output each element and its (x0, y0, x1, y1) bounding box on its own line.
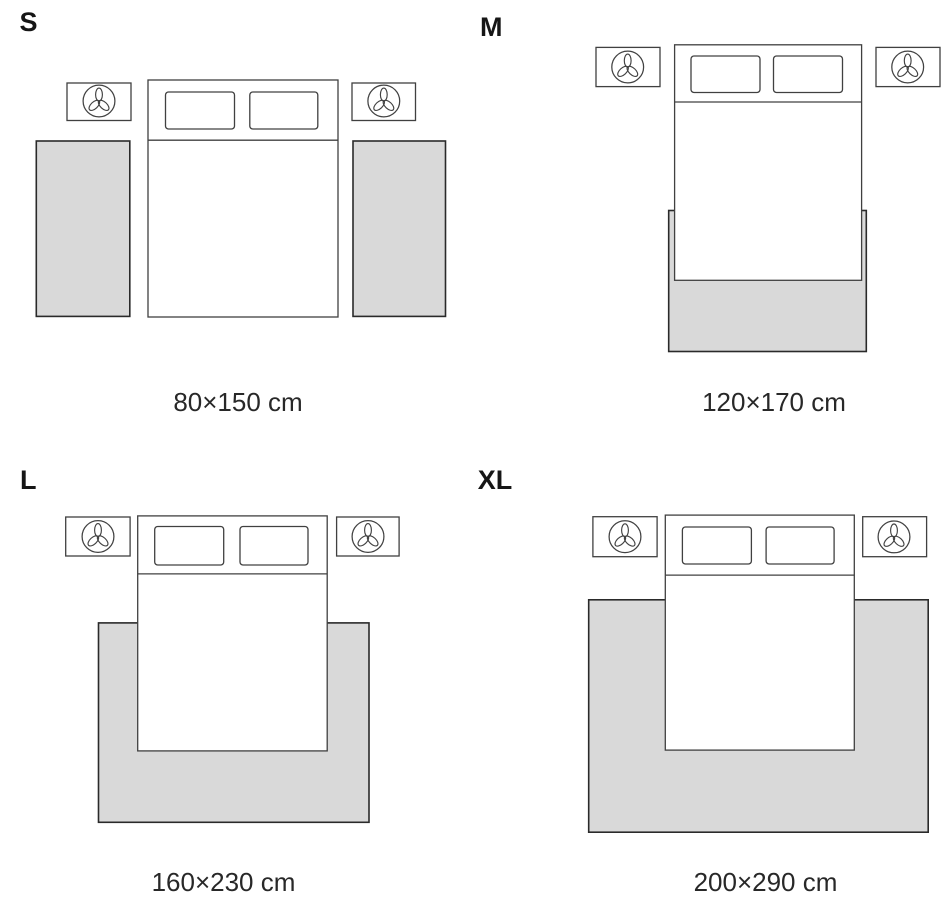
svg-text:XL: XL (478, 465, 513, 495)
svg-text:120×170 cm: 120×170 cm (702, 387, 846, 417)
svg-text:S: S (20, 7, 38, 37)
svg-text:80×150 cm: 80×150 cm (173, 387, 302, 417)
svg-text:M: M (480, 12, 503, 42)
svg-text:L: L (20, 465, 37, 495)
svg-text:160×230 cm: 160×230 cm (152, 867, 296, 897)
svg-text:200×290 cm: 200×290 cm (694, 867, 838, 897)
